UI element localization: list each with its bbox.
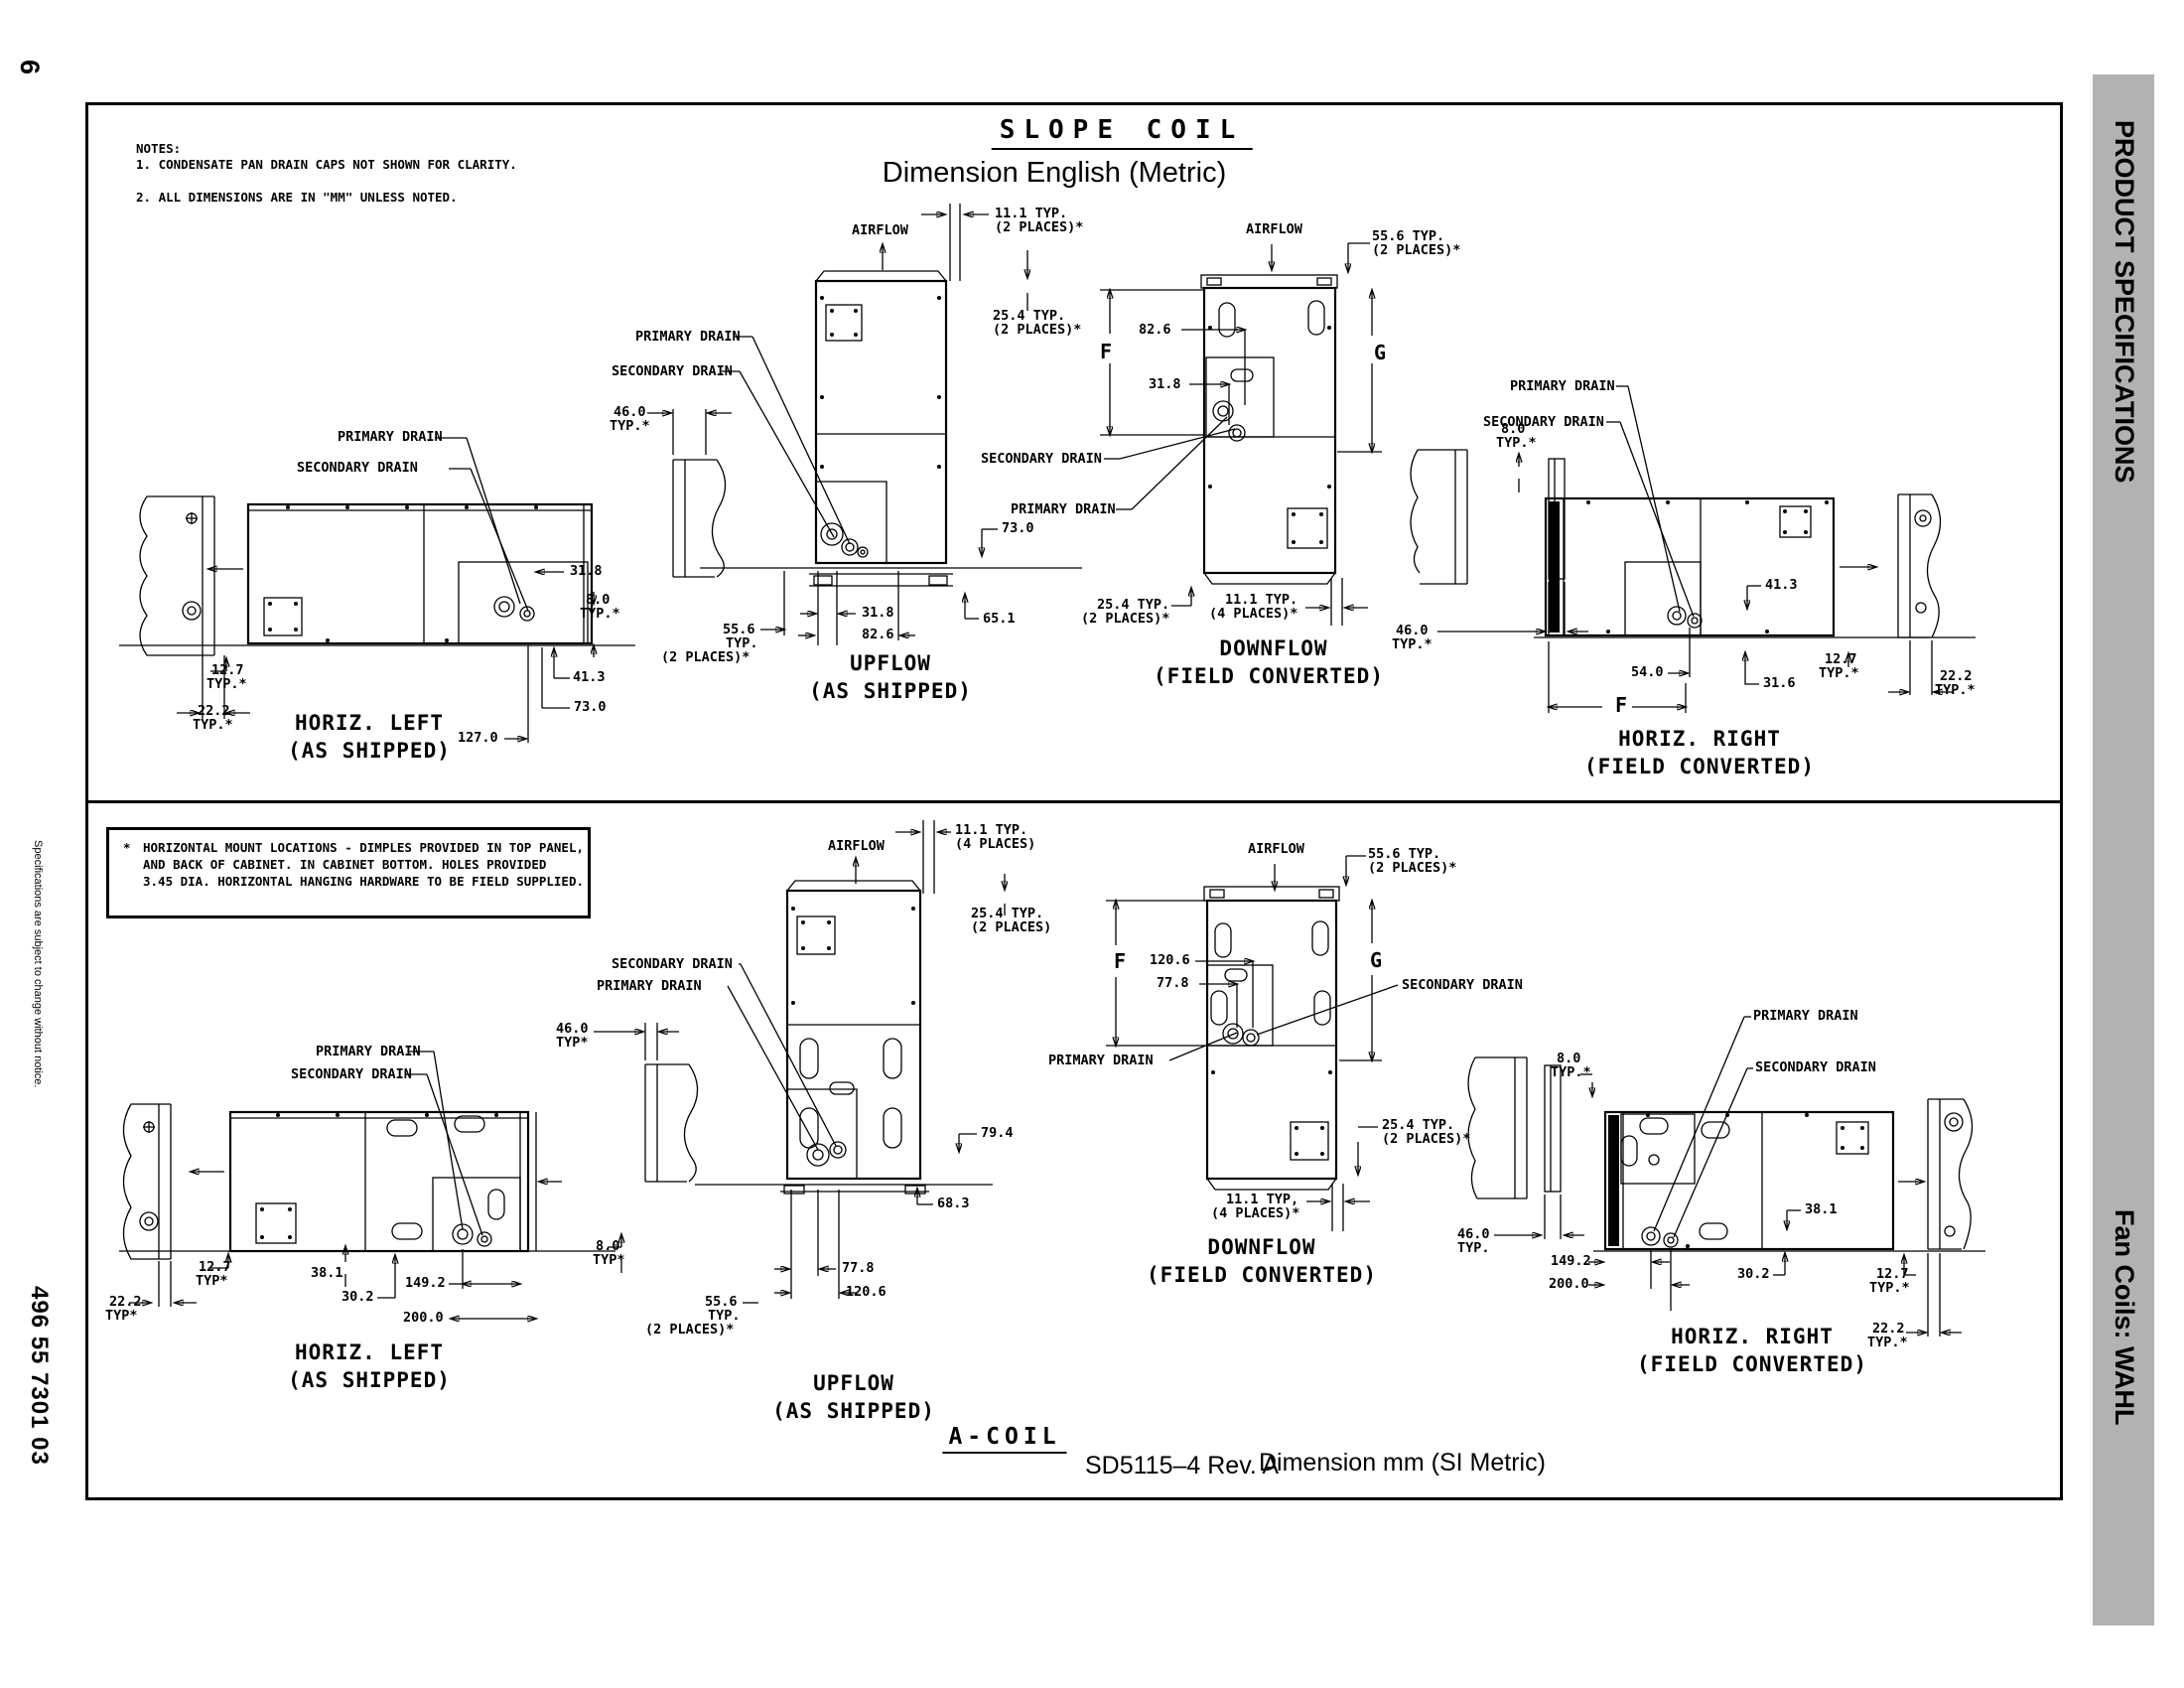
df2-dim-55-6-b: (2 PLACES)* (1368, 862, 1456, 876)
df-caption-1: DOWNFLOW (1219, 638, 1327, 659)
hl-dim-127-0: 127.0 (458, 732, 498, 746)
hl2-dim-149-2: 149.2 (405, 1277, 446, 1291)
hr2-dim-22-2-b: TYP.* (1867, 1336, 1908, 1350)
sidebar-subtitle: Fan Coils: WAHL (2109, 1209, 2139, 1426)
hl2-dim-200-0: 200.0 (403, 1312, 444, 1326)
df2-dim-11-1-b: (4 PLACES)* (1211, 1207, 1299, 1221)
mount-note-line-2: AND BACK OF CABINET. IN CABINET BOTTOM. … (143, 856, 546, 873)
uf2-dim-55-6-c: (2 PLACES)* (645, 1324, 734, 1337)
df2-dim-120-6: 120.6 (1150, 954, 1190, 968)
hr2-secondary-drain-label: SECONDARY DRAIN (1755, 1061, 1876, 1075)
hr-caption-1: HORIZ. RIGHT (1618, 729, 1781, 750)
df2-primary-drain-label: PRIMARY DRAIN (1048, 1055, 1154, 1068)
df-secondary-drain-label: SECONDARY DRAIN (981, 453, 1102, 467)
hl-secondary-drain-label: SECONDARY DRAIN (297, 462, 418, 476)
df2-dim-25-4-b: (2 PLACES)* (1382, 1133, 1470, 1147)
hr2-dim-149-2: 149.2 (1551, 1255, 1591, 1269)
hr2-dim-12-7-b: TYP.* (1869, 1282, 1910, 1296)
uf2-dim-11-1-b: (4 PLACES) (955, 838, 1035, 852)
hl-dim-31-8: 31.8 (570, 565, 603, 579)
df-airflow-label: AIRFLOW (1246, 223, 1302, 237)
uf-airflow-label: AIRFLOW (852, 224, 908, 238)
hl-dim-8-0-typ: TYP.* (580, 608, 620, 622)
mid2-dim-8-0-b: TYP* (593, 1254, 625, 1268)
hl2-dim-38-1: 38.1 (311, 1267, 343, 1281)
uf2-dim-79-4: 79.4 (981, 1127, 1014, 1141)
hl2-dim-22-2-b: TYP* (105, 1310, 138, 1324)
hl2-dim-12-7-b: TYP* (196, 1275, 228, 1289)
uf-dim-46-0-b: TYP.* (610, 420, 650, 434)
df-dim-82-6: 82.6 (1139, 324, 1171, 338)
hl-dim-73-0: 73.0 (574, 701, 607, 715)
hl-dim-22-2-typ: TYP.* (193, 719, 233, 733)
hl-dim-12-7-typ: TYP.* (206, 678, 247, 692)
df2-airflow-label: AIRFLOW (1248, 843, 1304, 857)
uf2-airflow-label: AIRFLOW (828, 840, 885, 854)
df2-caption-1: DOWNFLOW (1207, 1237, 1315, 1258)
hr2-dim-200-0: 200.0 (1549, 1278, 1589, 1292)
hr-caption-2: (FIELD CONVERTED) (1584, 757, 1815, 777)
hl-caption-2: (AS SHIPPED) (288, 741, 451, 762)
hr-dim-41-3: 41.3 (1765, 579, 1798, 593)
hl2-dim-46-0-b: TYP* (556, 1037, 589, 1051)
df-dim-25-4-b: (2 PLACES)* (1081, 613, 1169, 627)
drawing-number: SD5115–4 Rev. A (1085, 1452, 1279, 1480)
page-side-note: Specifications are subject to change wit… (32, 840, 44, 1087)
slope-coil-subtitle: Dimension English (Metric) (883, 157, 1227, 190)
hl-primary-drain-label: PRIMARY DRAIN (338, 431, 443, 445)
uf-primary-drain-label: PRIMARY DRAIN (635, 331, 741, 345)
hl2-caption-1: HORIZ. LEFT (295, 1342, 444, 1363)
uf-dim-25-4-b: (2 PLACES)* (993, 324, 1081, 338)
uf-caption-2: (AS SHIPPED) (809, 681, 972, 702)
df-dim-31-8: 31.8 (1149, 378, 1181, 392)
hr2-caption-2: (FIELD CONVERTED) (1637, 1354, 1867, 1375)
df2-secondary-drain-label: SECONDARY DRAIN (1402, 979, 1523, 993)
uf2-primary-drain-label: PRIMARY DRAIN (597, 980, 702, 994)
uf2-dim-25-4-b: (2 PLACES) (971, 921, 1051, 935)
mid3-dim-8-0-b: TYP.* (1551, 1066, 1591, 1080)
hr-letter-f: F (1615, 695, 1627, 715)
hr2-dim-38-1: 38.1 (1805, 1203, 1838, 1217)
hr2-dim-30-2: 30.2 (1737, 1268, 1770, 1282)
hr2-primary-drain-label: PRIMARY DRAIN (1753, 1010, 1858, 1024)
hr-dim-22-2-b: TYP.* (1935, 684, 1976, 698)
mount-note-line-1: HORIZONTAL MOUNT LOCATIONS - DIMPLES PRO… (143, 839, 584, 856)
hr-dim-54-0: 54.0 (1631, 666, 1664, 680)
page-doc-code: 496 55 7301 03 (25, 1286, 53, 1466)
df2-dim-77-8: 77.8 (1157, 977, 1189, 991)
df2-letter-f: F (1114, 951, 1126, 971)
sidebar-band: PRODUCT SPECIFICATIONS Fan Coils: WAHL (2093, 74, 2154, 1625)
hl2-dim-30-2: 30.2 (341, 1291, 374, 1305)
df-primary-drain-label: PRIMARY DRAIN (1011, 503, 1116, 517)
hr2-caption-1: HORIZ. RIGHT (1671, 1327, 1834, 1347)
df2-caption-2: (FIELD CONVERTED) (1147, 1265, 1377, 1286)
uf2-caption-1: UPFLOW (813, 1373, 894, 1394)
uf2-caption-2: (AS SHIPPED) (772, 1401, 935, 1422)
df-dim-55-6-b: (2 PLACES)* (1372, 244, 1460, 258)
mount-note-line-3: 3.45 DIA. HORIZONTAL HANGING HARDWARE TO… (143, 873, 584, 890)
hr-primary-drain-label: PRIMARY DRAIN (1510, 380, 1615, 394)
uf-dim-11-1-b: (2 PLACES)* (995, 221, 1083, 235)
mid-dim-8-0-b: TYP.* (1496, 437, 1537, 451)
mid3-dim-46-0-b: TYP. (1457, 1242, 1490, 1256)
notes-line-1: 1. CONDENSATE PAN DRAIN CAPS NOT SHOWN F… (136, 156, 517, 173)
uf-caption-1: UPFLOW (850, 653, 931, 674)
mount-note-bullet: * (123, 839, 131, 856)
df-dim-11-1-b: (4 PLACES)* (1209, 608, 1297, 622)
sidebar-title: PRODUCT SPECIFICATIONS (2109, 120, 2139, 484)
notes-line-2: 2. ALL DIMENSIONS ARE IN "MM" UNLESS NOT… (136, 189, 458, 206)
df-letter-g: G (1374, 343, 1386, 362)
uf2-dim-120-6: 120.6 (846, 1286, 887, 1300)
uf-secondary-drain-label: SECONDARY DRAIN (612, 365, 733, 379)
page-number: 6 (14, 60, 45, 74)
hr-dim-31-6: 31.6 (1763, 677, 1796, 691)
hl2-secondary-drain-label: SECONDARY DRAIN (291, 1068, 412, 1082)
hr-secondary-drain-label: SECONDARY DRAIN (1483, 416, 1604, 430)
hl2-primary-drain-label: PRIMARY DRAIN (316, 1046, 421, 1059)
uf2-dim-77-8: 77.8 (842, 1262, 875, 1276)
hl-caption-1: HORIZ. LEFT (295, 713, 444, 734)
hl2-caption-2: (AS SHIPPED) (288, 1370, 451, 1391)
dimension-standard-note: Dimension mm (SI Metric) (1259, 1449, 1546, 1477)
slope-coil-title: SLOPE COIL (992, 115, 1253, 150)
uf2-secondary-drain-label: SECONDARY DRAIN (612, 958, 733, 972)
notes-heading: NOTES: (136, 140, 181, 157)
mount-note-box: * HORIZONTAL MOUNT LOCATIONS - DIMPLES P… (106, 827, 591, 918)
uf-dim-31-8: 31.8 (862, 607, 894, 621)
product-specifications-page: 6 Specifications are subject to change w… (0, 0, 2184, 1688)
hr-dim-12-7-b: TYP.* (1819, 667, 1859, 681)
df-letter-f: F (1100, 342, 1112, 361)
df2-letter-g: G (1370, 950, 1382, 970)
uf-dim-82-6: 82.6 (862, 629, 894, 642)
a-coil-title: A-COIL (942, 1424, 1066, 1454)
uf-dim-55-6-c: (2 PLACES)* (661, 651, 750, 665)
mid-dim-46-0-b: TYP.* (1392, 638, 1433, 652)
df-caption-2: (FIELD CONVERTED) (1154, 666, 1384, 687)
uf-dim-65-1: 65.1 (983, 613, 1016, 627)
uf-dim-73-0: 73.0 (1002, 522, 1034, 536)
hl-dim-41-3: 41.3 (573, 671, 606, 685)
uf2-dim-68-3: 68.3 (937, 1197, 970, 1211)
